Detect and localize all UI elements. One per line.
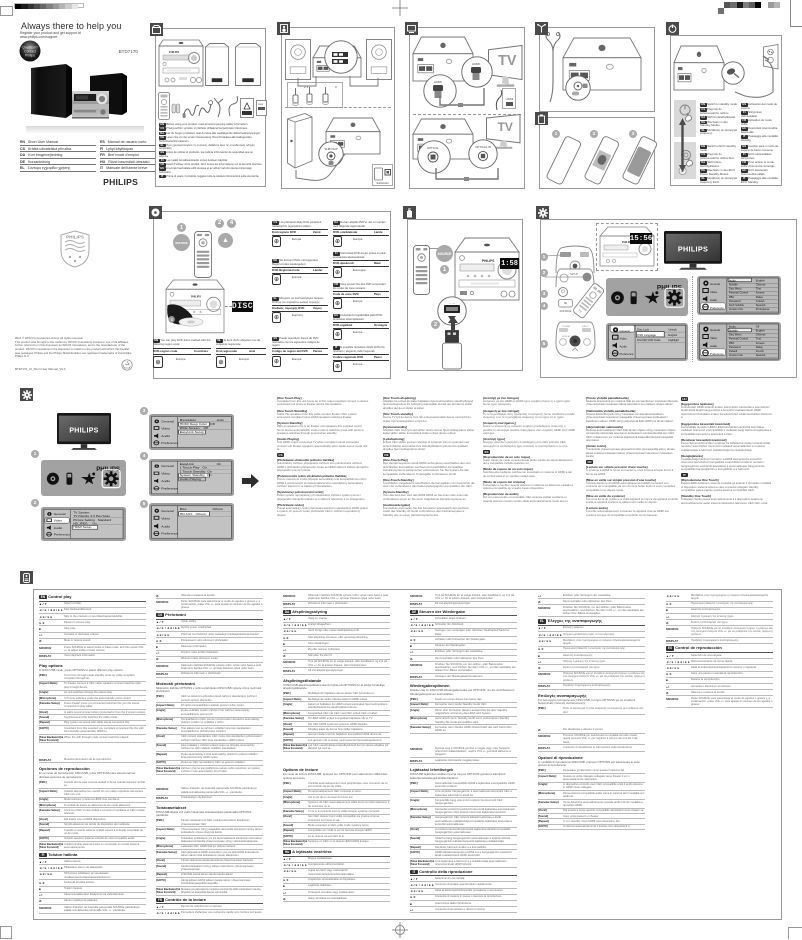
svg-text:Video: Video <box>710 336 718 340</box>
svg-text:General: General <box>54 512 66 516</box>
svg-text:Disc Lock: Disc Lock <box>637 328 649 332</box>
svg-text:OSD Language: OSD Language <box>637 333 656 337</box>
svg-text:Audio: Audio <box>161 525 170 529</box>
svg-text:DISPLAY: DISPLAY <box>562 335 571 338</box>
svg-text:Malay: Malay <box>756 345 764 349</box>
svg-text:Unlock: Unlock <box>668 328 677 332</box>
svg-text:Preference: Preference <box>54 533 71 537</box>
svg-text:TV: TV <box>498 53 517 69</box>
svg-text:Preference: Preference <box>710 352 724 356</box>
svg-text:OPTICAL IN: OPTICAL IN <box>475 145 490 149</box>
svg-text:Subtitle: Subtitle <box>729 328 738 332</box>
svg-text:Audio Playing: Audio Playing <box>180 478 202 481</box>
svg-text:OPTICAL: OPTICAL <box>427 146 439 150</box>
svg-text:Preference: Preference <box>620 352 634 356</box>
svg-text:Disc Menu: Disc Menu <box>729 333 742 337</box>
svg-text:General: General <box>620 329 630 333</box>
svg-text:English: English <box>756 328 765 332</box>
svg-text:Portuguese: Portuguese <box>756 307 770 311</box>
svg-text:Disc: Disc <box>180 507 187 511</box>
svg-text:Preference: Preference <box>161 441 178 445</box>
svg-text:HDMI: HDMI <box>506 97 514 101</box>
svg-text:Video: Video <box>161 472 170 475</box>
svg-text:Thai: Thai <box>756 337 762 341</box>
svg-text:EJECT: EJECT <box>582 326 590 328</box>
svg-text:Preference: Preference <box>161 487 178 490</box>
svg-text:Audio: Audio <box>620 344 628 348</box>
svg-text:Audio: Audio <box>161 434 170 438</box>
svg-text:General: General <box>161 465 174 468</box>
svg-text:Spanish: Spanish <box>756 353 766 357</box>
svg-text:HDMI: HDMI <box>434 80 442 84</box>
svg-text:PHILIPS: PHILIPS <box>678 244 708 253</box>
svg-text:PHILIPS: PHILIPS <box>482 259 494 263</box>
svg-text:On: On <box>217 462 222 465</box>
svg-text:HDMI: HDMI <box>472 62 480 66</box>
svg-text:Password: Password <box>729 345 741 349</box>
svg-text:HD AUX Others: HD AUX Others <box>180 512 207 516</box>
svg-text:Preference: Preference <box>710 306 724 310</box>
svg-text:Audio: Audio <box>710 298 718 302</box>
svg-text:English: English <box>668 333 677 337</box>
svg-text:Audio: Audio <box>161 479 170 482</box>
svg-text:Subtitle: Subtitle <box>729 282 738 286</box>
svg-text:Audio: Audio <box>54 526 63 530</box>
svg-text:Spanish: Spanish <box>756 303 766 307</box>
svg-text:English: English <box>756 278 765 282</box>
svg-text:Subwoofer: Subwoofer <box>376 181 389 185</box>
svg-text:PHILIPS: PHILIPS <box>69 427 98 434</box>
svg-text:www: www <box>258 103 263 106</box>
svg-text:Audio: Audio <box>729 278 736 282</box>
svg-text:Others: Others <box>212 507 223 511</box>
svg-text:3: 3 <box>171 318 173 322</box>
svg-text:3: 3 <box>335 85 337 89</box>
svg-text:Preference: Preference <box>161 532 178 536</box>
svg-text:Disc Menu: Disc Menu <box>729 287 742 291</box>
svg-text:PBC: PBC <box>729 295 735 299</box>
svg-text:Video: Video <box>710 290 718 294</box>
svg-text:←↔: ←↔ <box>449 301 455 305</box>
svg-text:Version Info: Version Info <box>729 307 743 311</box>
svg-text:Korean: Korean <box>756 341 765 345</box>
svg-text:Video: Video <box>54 519 63 523</box>
svg-text:General: General <box>710 328 720 332</box>
svg-text:SETUP: SETUP <box>570 273 578 276</box>
svg-text:Parental Control: Parental Control <box>729 291 748 295</box>
svg-text:Video: Video <box>161 427 170 431</box>
svg-text:2 1: 2 1 <box>304 85 309 89</box>
svg-text:Turkish: Turkish <box>756 299 765 303</box>
svg-text:SOURCE: SOURCE <box>560 309 572 313</box>
svg-text:HDMI Setup: HDMI Setup <box>73 526 91 530</box>
svg-text:Malay: Malay <box>756 295 764 299</box>
svg-text:POWER: POWER <box>562 326 571 328</box>
svg-text:Parental Control: Parental Control <box>729 337 748 341</box>
svg-text:Chinese: Chinese <box>756 333 766 337</box>
svg-text:Video: Video <box>161 516 170 520</box>
svg-text:PHILIPS: PHILIPS <box>66 234 84 239</box>
svg-text:EasyLink Setup: EasyLink Setup <box>180 430 204 434</box>
svg-text:Highlight: Highlight <box>668 338 679 342</box>
svg-text:Chinese: Chinese <box>756 282 766 286</box>
svg-text:Thai: Thai <box>756 287 762 291</box>
svg-text:Korean: Korean <box>756 291 765 295</box>
svg-text:PHILIPS: PHILIPS <box>169 50 179 54</box>
svg-text:1 Touch Standby On: 1 Touch Standby On <box>180 470 213 473</box>
svg-text:Default: Default <box>729 349 738 353</box>
svg-text:PBC: PBC <box>729 341 735 345</box>
svg-text:French: French <box>756 349 765 353</box>
svg-text:Audio: Audio <box>729 324 736 328</box>
svg-text:Resolution: Resolution <box>180 418 197 422</box>
svg-text:Auto: Auto <box>217 418 224 422</box>
svg-text:Audio: Audio <box>710 344 718 348</box>
svg-text:Off: Off <box>756 324 760 328</box>
svg-text:System Standby On: System Standby On <box>180 474 212 477</box>
svg-text:Video: Video <box>620 337 628 341</box>
svg-text:SUB OUT: SUB OUT <box>324 147 338 151</box>
svg-text:TV: TV <box>498 120 513 134</box>
svg-text:General: General <box>710 282 720 286</box>
svg-text:General: General <box>161 509 174 513</box>
svg-text:DivX Subtitle: DivX Subtitle <box>729 303 745 307</box>
svg-text:Password: Password <box>729 299 741 303</box>
svg-text:PHILIPS: PHILIPS <box>191 295 201 299</box>
svg-text:General: General <box>161 420 174 424</box>
svg-text:Wide Screen Off: Wide Screen Off <box>180 426 208 430</box>
svg-text:Philips: Philips <box>25 54 35 58</box>
svg-text:DivX(R) VOD Code: DivX(R) VOD Code <box>637 338 661 342</box>
svg-text:Version Info: Version Info <box>729 353 743 357</box>
